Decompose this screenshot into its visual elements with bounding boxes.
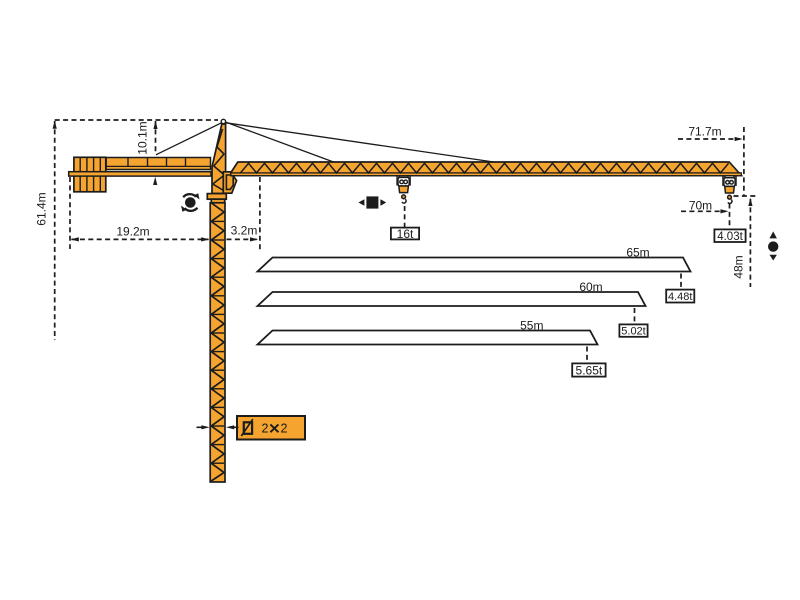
svg-text:16t: 16t [397,227,414,241]
svg-text:4.48t: 4.48t [668,291,692,303]
svg-text:70m: 70m [689,198,712,212]
svg-text:55m: 55m [520,319,543,333]
svg-text:60m: 60m [579,280,602,294]
svg-text:19.2m: 19.2m [116,225,149,239]
svg-text:61.4m: 61.4m [35,192,49,225]
svg-text:2: 2 [262,422,269,436]
svg-text:4.03t: 4.03t [717,231,743,243]
svg-text:48m: 48m [732,255,746,278]
svg-text:3.2m: 3.2m [231,224,258,238]
svg-text:65m: 65m [626,245,649,259]
svg-text:71.7m: 71.7m [688,124,721,138]
svg-text:5.02t: 5.02t [621,326,645,338]
svg-text:10.1m: 10.1m [136,121,150,154]
svg-text:5.65t: 5.65t [576,363,603,377]
svg-text:2: 2 [281,422,288,436]
